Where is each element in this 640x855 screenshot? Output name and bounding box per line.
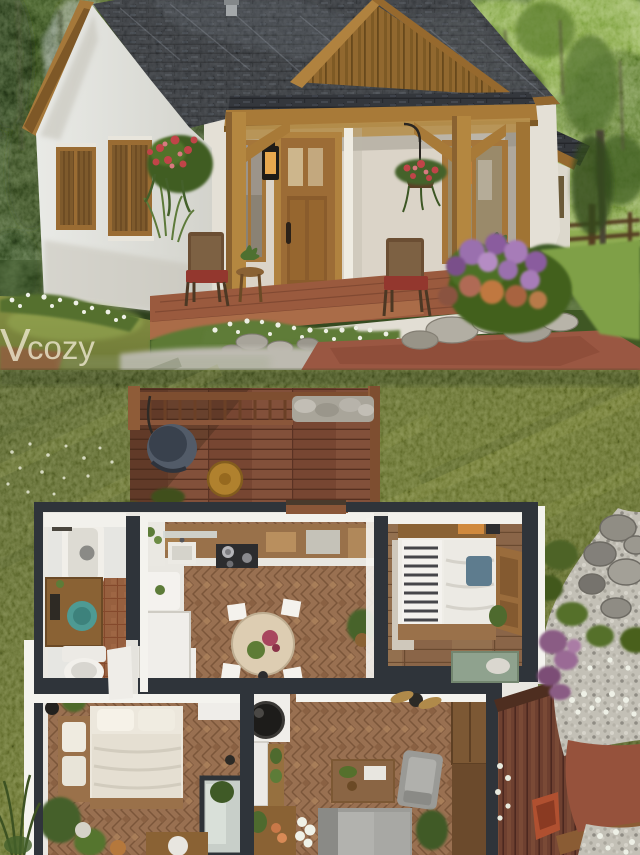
- svg-text:cozy: cozy: [27, 329, 95, 366]
